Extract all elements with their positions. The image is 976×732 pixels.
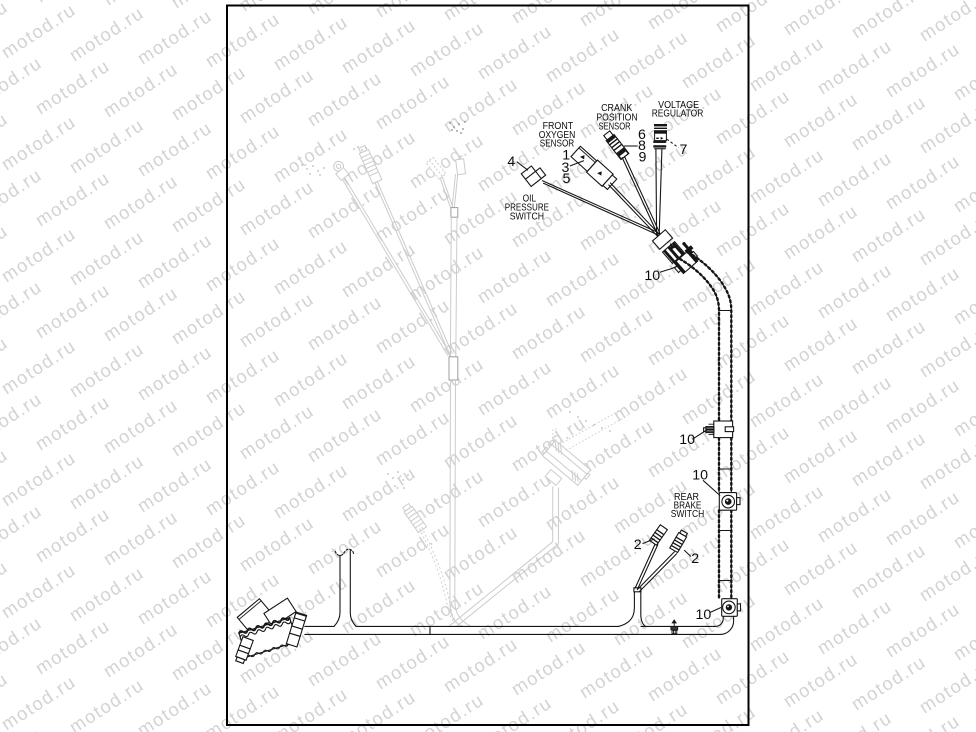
svg-text:10: 10 (679, 432, 695, 448)
svg-text:10: 10 (692, 467, 708, 483)
svg-text:SWITCH: SWITCH (510, 211, 544, 222)
svg-text:9: 9 (638, 149, 646, 165)
svg-text:10: 10 (644, 268, 660, 284)
svg-text:SENSOR: SENSOR (599, 121, 631, 132)
svg-text:10: 10 (696, 607, 712, 623)
svg-text:7: 7 (679, 142, 687, 158)
svg-text:5: 5 (563, 171, 571, 187)
svg-text:SWITCH: SWITCH (671, 509, 705, 520)
svg-text:4: 4 (507, 154, 515, 170)
svg-text:REGULATOR: REGULATOR (652, 109, 704, 120)
svg-text:2: 2 (691, 551, 699, 567)
svg-text:2: 2 (634, 537, 642, 553)
